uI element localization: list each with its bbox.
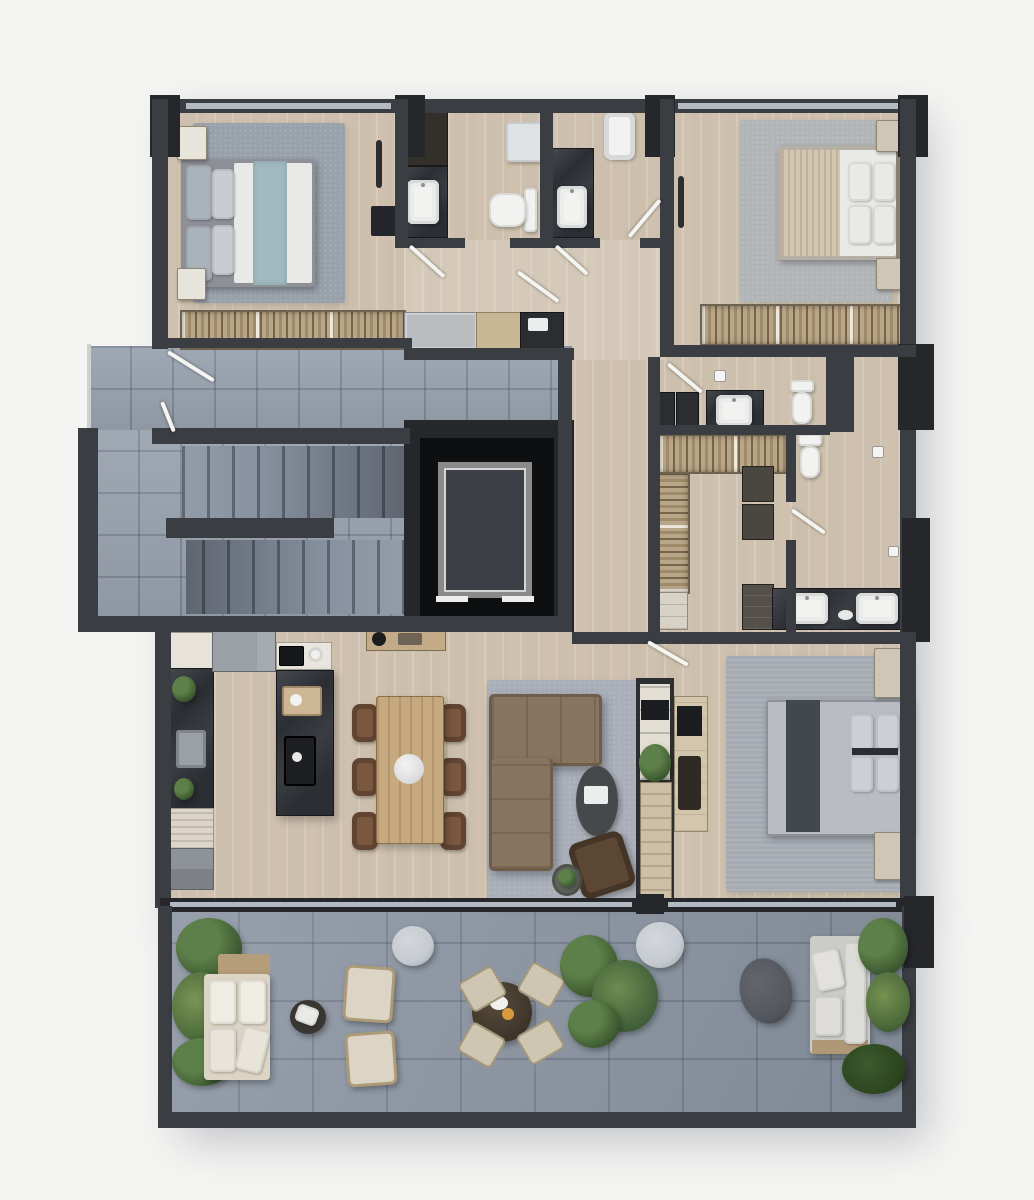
lounge-cushion — [814, 996, 842, 1036]
terrace-plant — [866, 972, 910, 1032]
terrace-bushes — [842, 1044, 906, 1094]
bistro-pastry — [502, 1008, 514, 1020]
floor-plan-scene — [0, 0, 1034, 1200]
lounge-chair — [342, 964, 396, 1023]
balcony-layer — [0, 0, 1034, 1200]
outdoor-sofa-cushion — [239, 980, 266, 1024]
round-pouf — [636, 922, 684, 968]
terrace-plant-large — [568, 1000, 620, 1048]
lounge-chair — [344, 1030, 398, 1087]
oval-pouf — [733, 953, 799, 1030]
round-pouf — [392, 926, 434, 966]
terrace-plant — [858, 918, 908, 976]
outdoor-sofa-cushion — [209, 980, 236, 1024]
outdoor-sofa-back — [218, 954, 270, 976]
outdoor-sofa-cushion — [209, 1028, 236, 1072]
